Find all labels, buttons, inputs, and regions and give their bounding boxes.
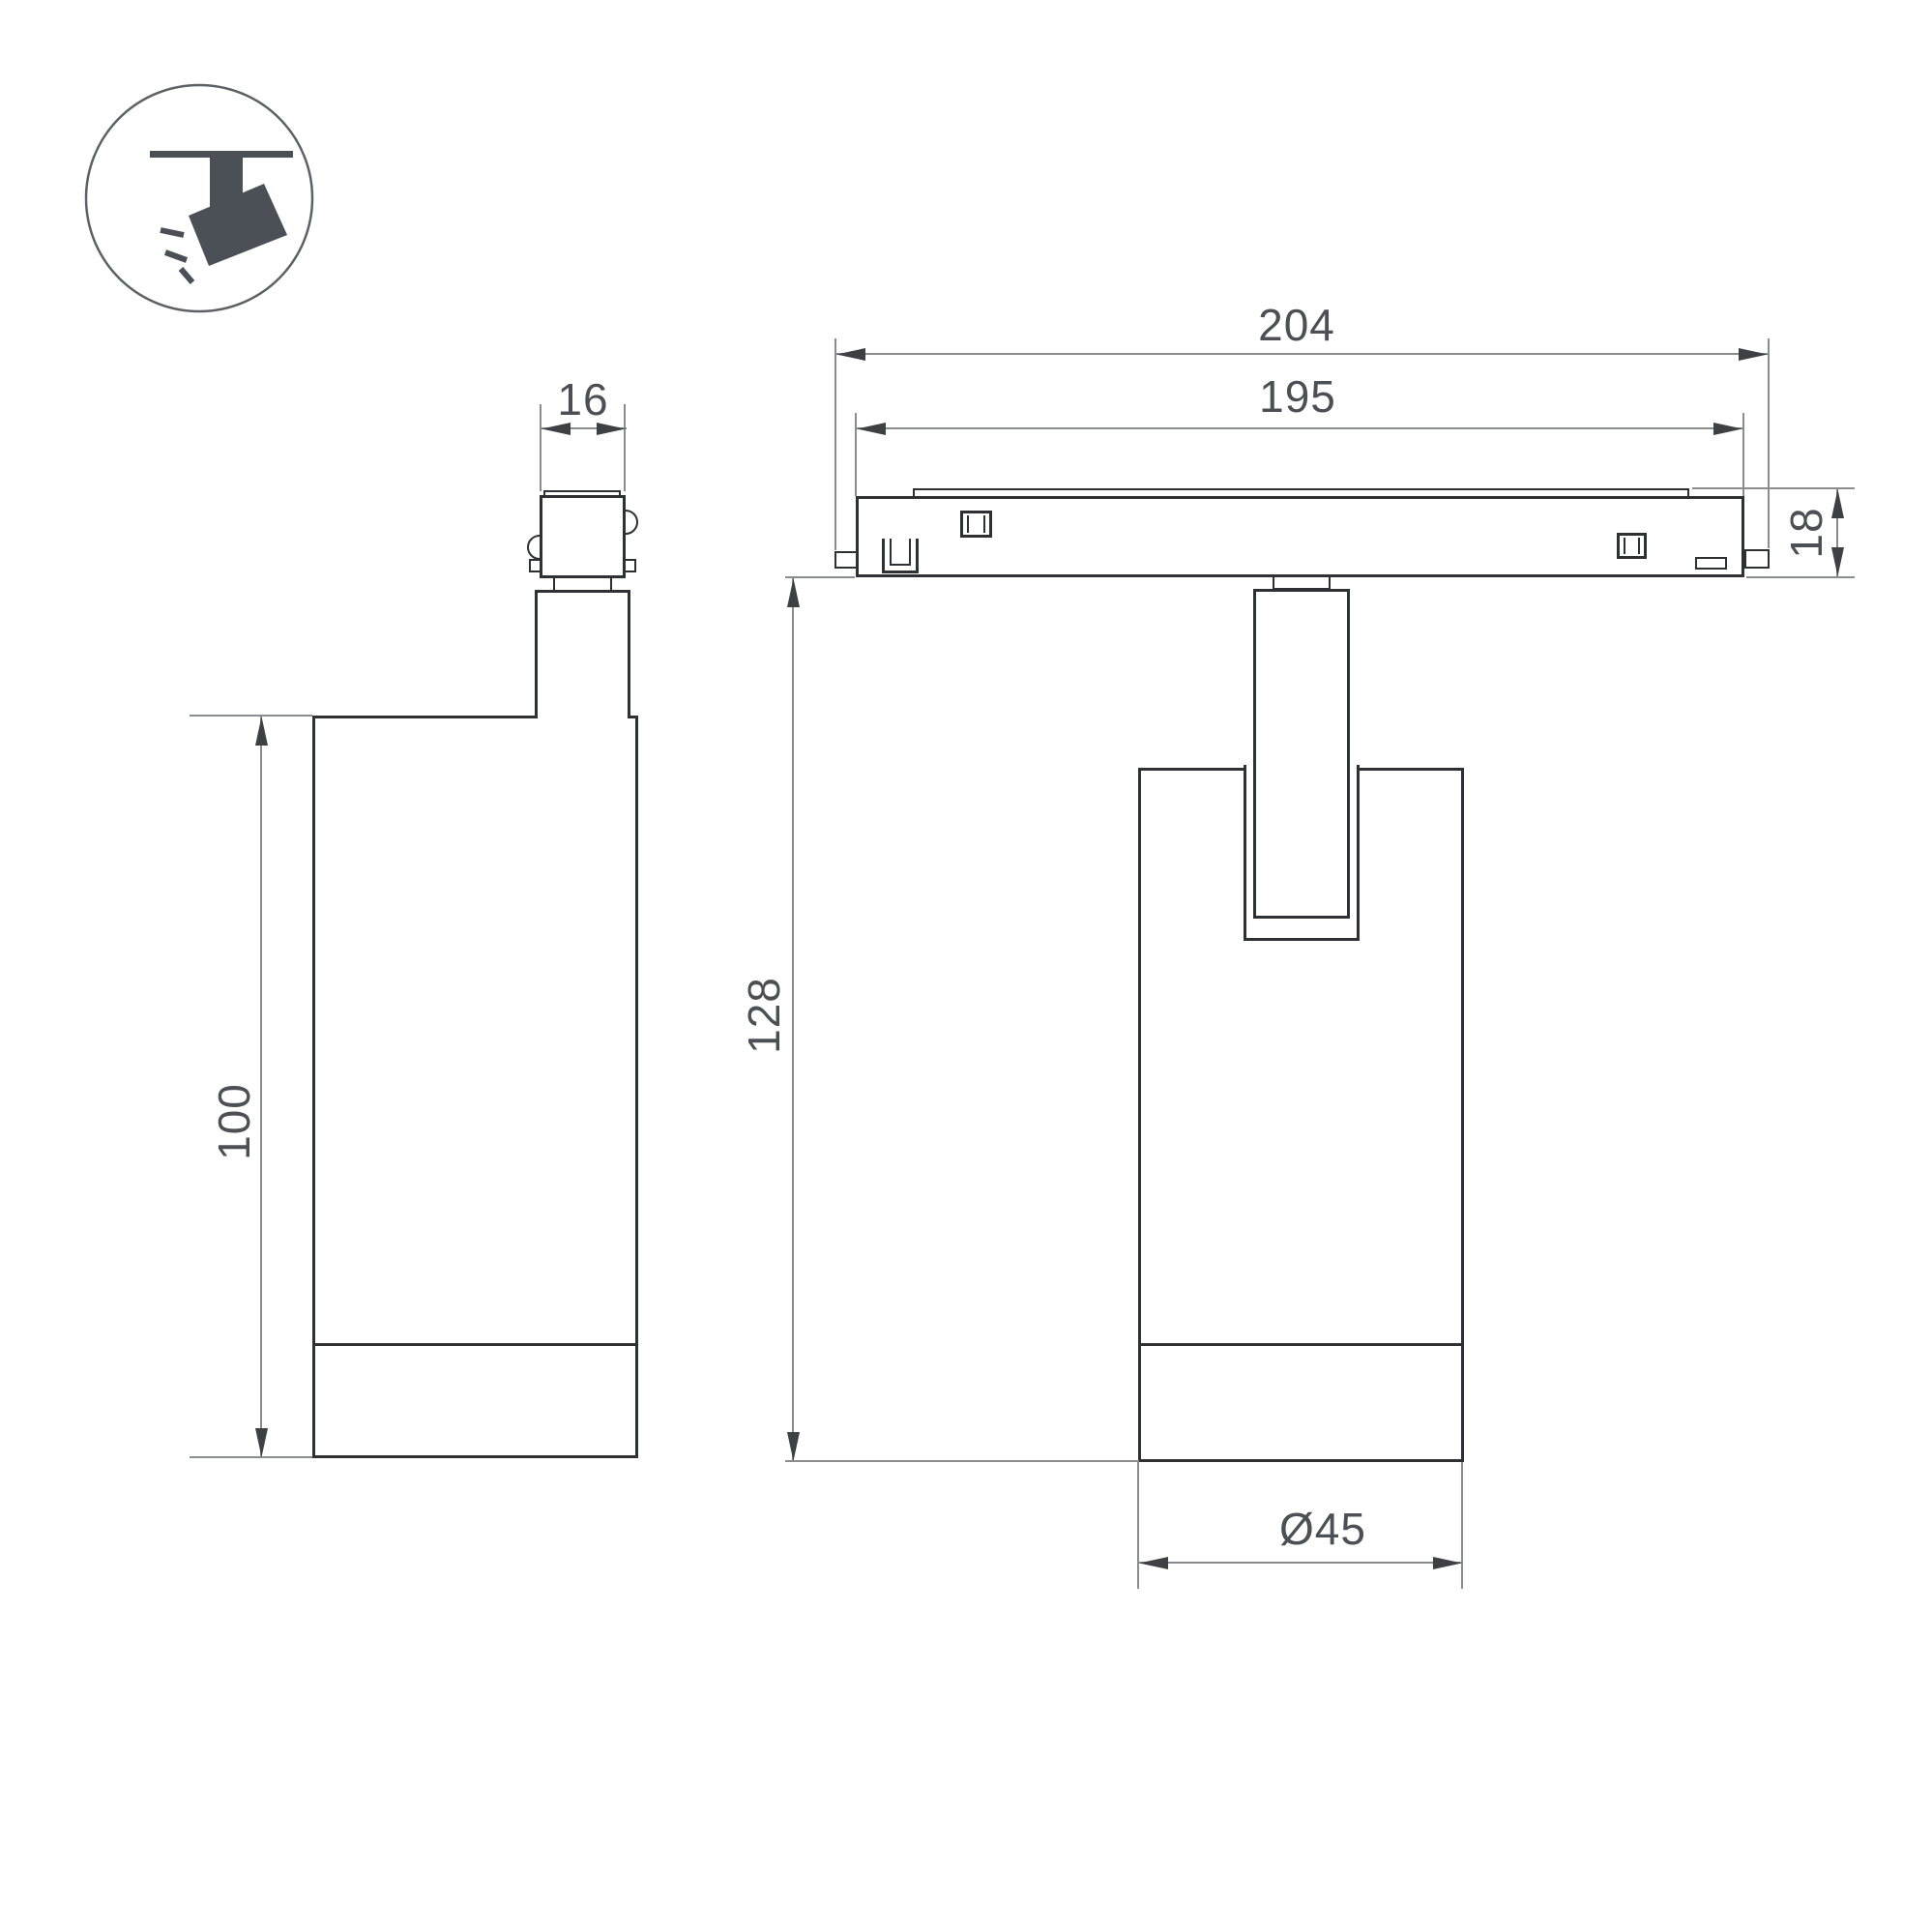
side-body	[312, 716, 638, 1458]
track-latch-left	[960, 511, 992, 538]
icon-circle	[86, 85, 312, 311]
track-contact-strip	[1695, 557, 1727, 570]
front-body-trim-line	[1138, 1343, 1464, 1346]
dim195-arrow-left	[857, 423, 886, 435]
side-pivot-arm	[535, 590, 630, 718]
dim100-arrow-down	[255, 1428, 268, 1457]
dim195-line	[856, 427, 1744, 429]
track-latch-right	[1617, 533, 1647, 559]
track-latch-right-inner	[1624, 538, 1640, 554]
dim204-ext-left	[834, 338, 836, 550]
dim45-ext-right	[1461, 1462, 1463, 1589]
dim195-arrow-right	[1713, 423, 1742, 435]
dim195-label: 195	[1201, 372, 1394, 421]
dim100-label: 100	[210, 1025, 258, 1218]
dim204-label: 204	[1200, 301, 1393, 349]
track-spotlight-icon	[83, 82, 315, 314]
dim45-arrow-right	[1433, 1557, 1462, 1569]
dim204-ext-right	[1768, 338, 1770, 548]
dim195-ext-left	[855, 413, 857, 496]
side-body-trim-line	[312, 1343, 638, 1346]
dim128-label: 128	[740, 919, 788, 1112]
track-u-clip	[882, 539, 919, 573]
dim128-line	[792, 577, 794, 1462]
dim128-arrow-down	[787, 1432, 800, 1461]
dim100-arrow-up	[255, 717, 268, 746]
dim16-label: 16	[486, 375, 680, 424]
dim100-ext-bottom	[190, 1456, 312, 1458]
dim100-line	[260, 716, 262, 1458]
dim45-ext-left	[1137, 1462, 1139, 1589]
track-u-clip-inner	[890, 539, 911, 566]
dim204-arrow-right	[1739, 348, 1768, 361]
side-track-adapter	[540, 495, 626, 578]
dim100-ext-top	[190, 715, 312, 717]
technical-drawing-canvas: 16 100	[0, 0, 1932, 1932]
dim128-ext-bottom	[785, 1460, 1139, 1462]
track-latch-left-inner	[967, 515, 985, 533]
dim45-label: Ø45	[1226, 1505, 1420, 1553]
dim204-arrow-left	[836, 348, 865, 361]
dim45-arrow-left	[1139, 1557, 1168, 1569]
icon-ceiling-bar	[150, 151, 293, 158]
dim128-arrow-up	[787, 578, 800, 607]
front-stem-collar	[1273, 577, 1331, 590]
dim204-line	[835, 353, 1770, 355]
track-end-tab-right	[1744, 549, 1770, 569]
dim128-ext-top	[785, 576, 855, 578]
front-pivot-stem	[1253, 589, 1350, 919]
dim45-line	[1138, 1562, 1463, 1564]
dim18-arrow-down	[1831, 547, 1844, 576]
dim18-label: 18	[1782, 436, 1830, 629]
dim18-arrow-up	[1831, 489, 1844, 518]
dim195-ext-right	[1742, 413, 1744, 496]
track-end-tab-left	[834, 551, 858, 569]
